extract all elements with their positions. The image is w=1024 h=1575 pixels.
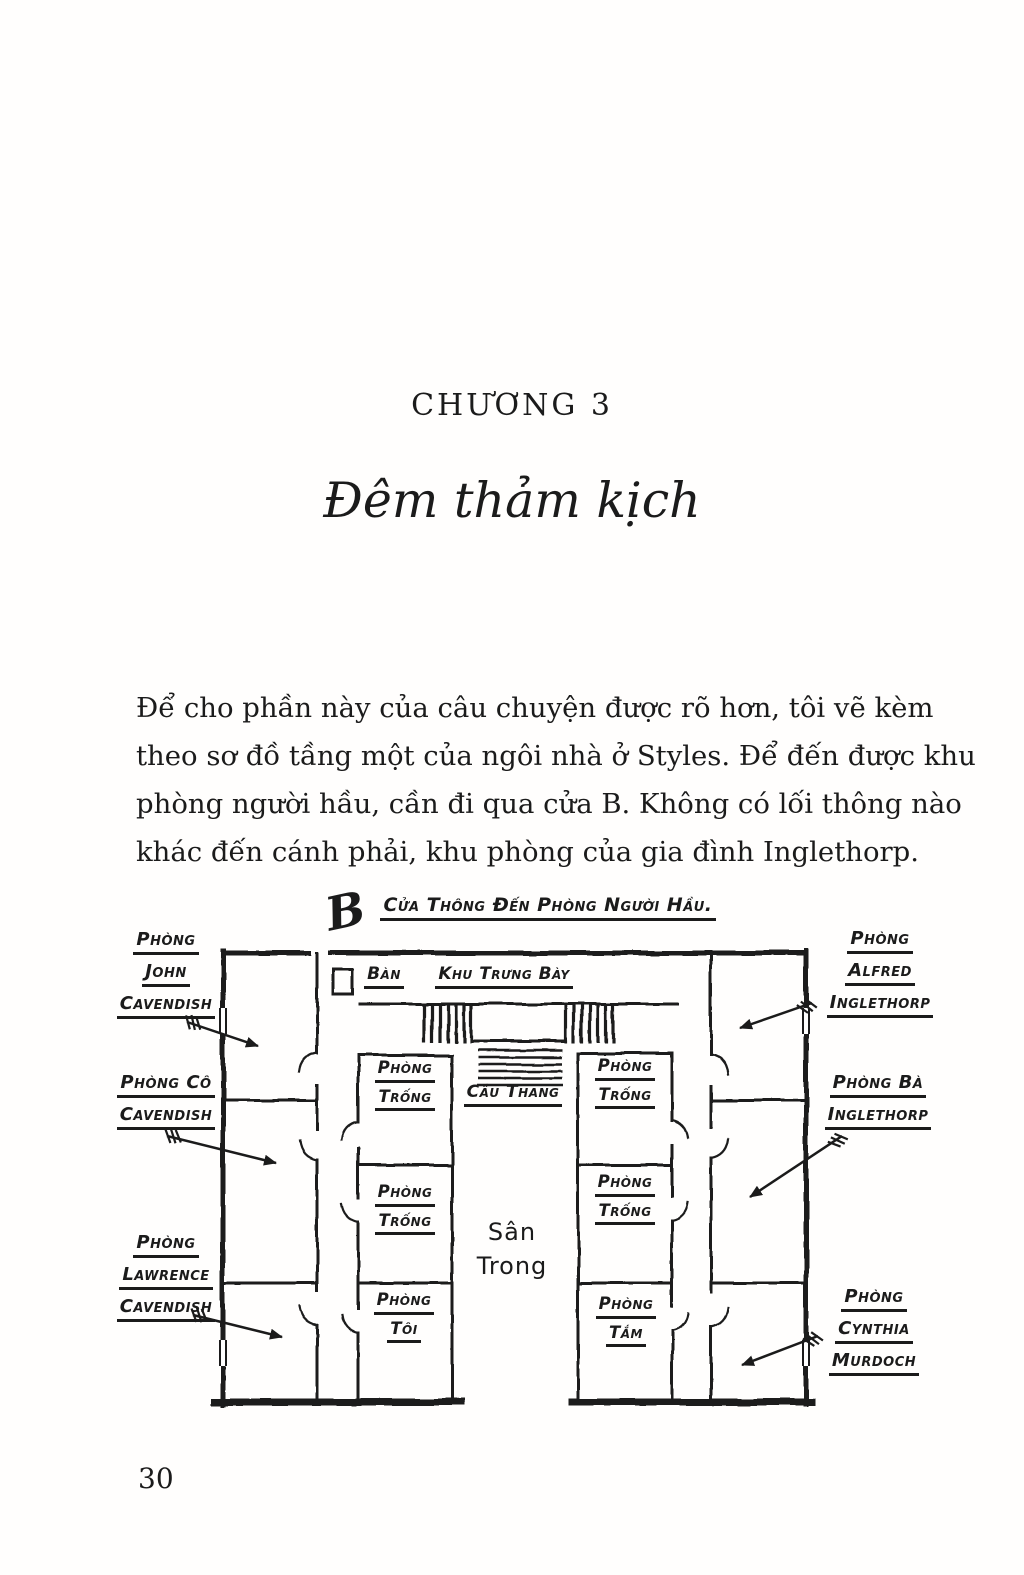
staircase-hatching	[477, 1050, 563, 1085]
label-gallery: Khu Trưng Bày	[424, 966, 584, 989]
label-bathroom: Phòng Tắm	[581, 1296, 671, 1347]
book-page: CHƯƠNG 3 Đêm thảm kịch Để cho phần này c…	[0, 0, 1024, 1575]
label-staircase: Cầu Thang	[450, 1084, 576, 1107]
walls	[214, 951, 812, 1404]
label-room-cynthia-murdoch: Phòng Cynthia Murdoch	[813, 1288, 935, 1376]
label-room-co-cavendish: Phòng Cô Cavendish	[103, 1074, 229, 1130]
label-room-john-cavendish: Phòng John Cavendish	[106, 931, 226, 1019]
label-empty-room: Phòng Trống	[579, 1058, 671, 1109]
floorplan: B Cửa Thông Đến Phòng Người Hầu. Bàn Khu…	[0, 0, 1024, 1575]
door-b-symbol	[333, 970, 353, 994]
label-my-room: Phòng Tôi	[357, 1292, 451, 1343]
label-empty-room: Phòng Trống	[579, 1174, 671, 1225]
label-room-alfred-inglethorp: Phòng Alfred Inglethorp	[818, 930, 942, 1018]
label-table: Bàn	[356, 966, 412, 989]
label-room-ba-inglethorp: Phòng Bà Inglethorp	[815, 1074, 941, 1130]
label-empty-room: Phòng Trống	[359, 1060, 451, 1111]
page-number: 30	[138, 1462, 174, 1495]
window-marks	[220, 1008, 809, 1366]
label-empty-room: Phòng Trống	[359, 1184, 451, 1235]
railing-hatching	[424, 1004, 613, 1043]
label-room-lawrence-cavendish: Phòng Lawrence Cavendish	[100, 1234, 232, 1322]
label-servants-door: Cửa Thông Đến Phòng Người Hầu.	[378, 896, 718, 921]
label-courtyard: Sân Trong	[462, 1220, 562, 1278]
